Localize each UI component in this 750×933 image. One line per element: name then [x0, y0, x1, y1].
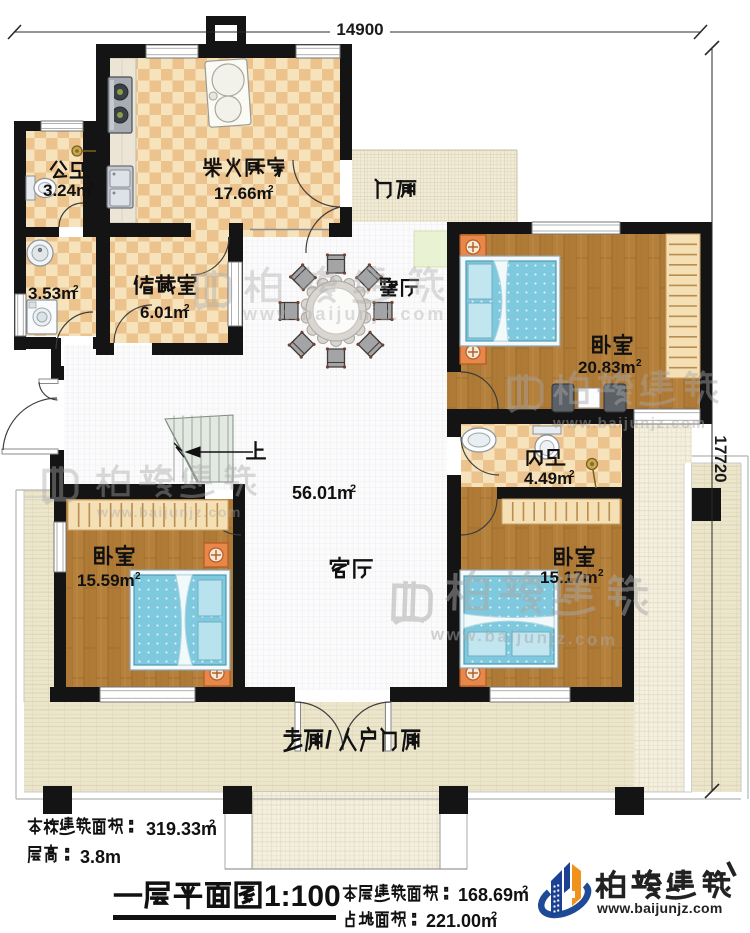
- svg-text:2: 2: [636, 358, 642, 369]
- svg-text:2: 2: [135, 571, 141, 582]
- svg-text:319.33m: 319.33m: [146, 819, 217, 839]
- svg-text:2: 2: [209, 818, 215, 830]
- svg-text:4.49m: 4.49m: [524, 469, 572, 488]
- svg-text:17.66m: 17.66m: [214, 184, 272, 203]
- svg-text:2: 2: [268, 184, 274, 195]
- svg-text:2: 2: [569, 469, 575, 480]
- svg-text:3.53m: 3.53m: [28, 284, 76, 303]
- svg-text:168.69m: 168.69m: [458, 885, 529, 905]
- svg-text:/: /: [325, 726, 332, 754]
- svg-text:2: 2: [491, 910, 497, 922]
- svg-text:www.baijunjz.com: www.baijunjz.com: [242, 304, 446, 324]
- svg-text:1:100: 1:100: [264, 880, 341, 913]
- svg-text:3.24m: 3.24m: [43, 181, 91, 200]
- svg-text:15.59m: 15.59m: [77, 571, 135, 590]
- svg-text:17720: 17720: [711, 435, 730, 482]
- svg-text:2: 2: [73, 284, 79, 295]
- svg-text:www.baijunjz.com: www.baijunjz.com: [552, 415, 706, 432]
- svg-text:www.baijunjz.com: www.baijunjz.com: [96, 504, 242, 520]
- svg-text:2: 2: [522, 884, 528, 896]
- svg-text:2: 2: [350, 483, 356, 495]
- svg-text:221.00m: 221.00m: [426, 911, 497, 931]
- svg-text:6.01m: 6.01m: [140, 303, 188, 322]
- svg-text:56.01m: 56.01m: [292, 483, 353, 503]
- svg-text:2: 2: [598, 568, 604, 579]
- svg-text:2: 2: [184, 303, 190, 314]
- svg-text:14900: 14900: [336, 20, 383, 39]
- svg-text:www.baijunjz.com: www.baijunjz.com: [596, 900, 723, 916]
- svg-text:3.8m: 3.8m: [80, 847, 121, 867]
- svg-text:2: 2: [88, 181, 94, 192]
